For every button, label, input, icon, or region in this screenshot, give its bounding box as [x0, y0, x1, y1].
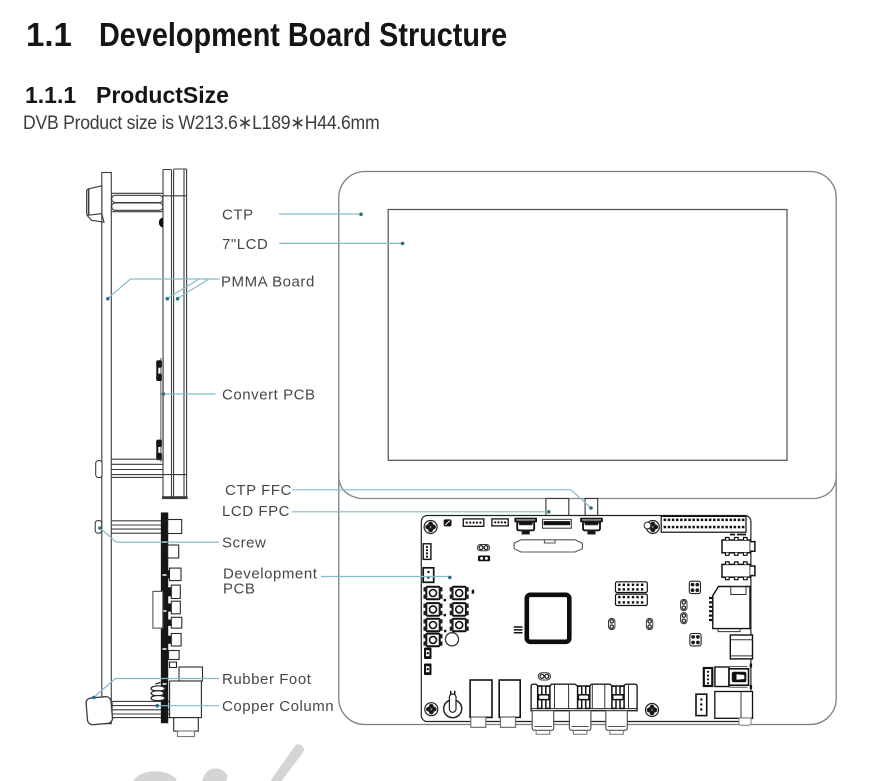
svg-text:Screw: Screw — [222, 535, 266, 552]
svg-text:CTP FFC: CTP FFC — [225, 482, 292, 499]
svg-text:Rubber Foot: Rubber Foot — [222, 671, 312, 688]
svg-text:PMMA Board: PMMA Board — [221, 274, 315, 291]
svg-text:Copper Column: Copper Column — [222, 698, 334, 715]
svg-text:CTP: CTP — [222, 207, 254, 224]
svg-text:LCD FPC: LCD FPC — [222, 503, 290, 520]
svg-text:PCB: PCB — [223, 581, 256, 598]
svg-text:7"LCD: 7"LCD — [222, 236, 268, 253]
svg-text:Convert PCB: Convert PCB — [222, 387, 316, 404]
